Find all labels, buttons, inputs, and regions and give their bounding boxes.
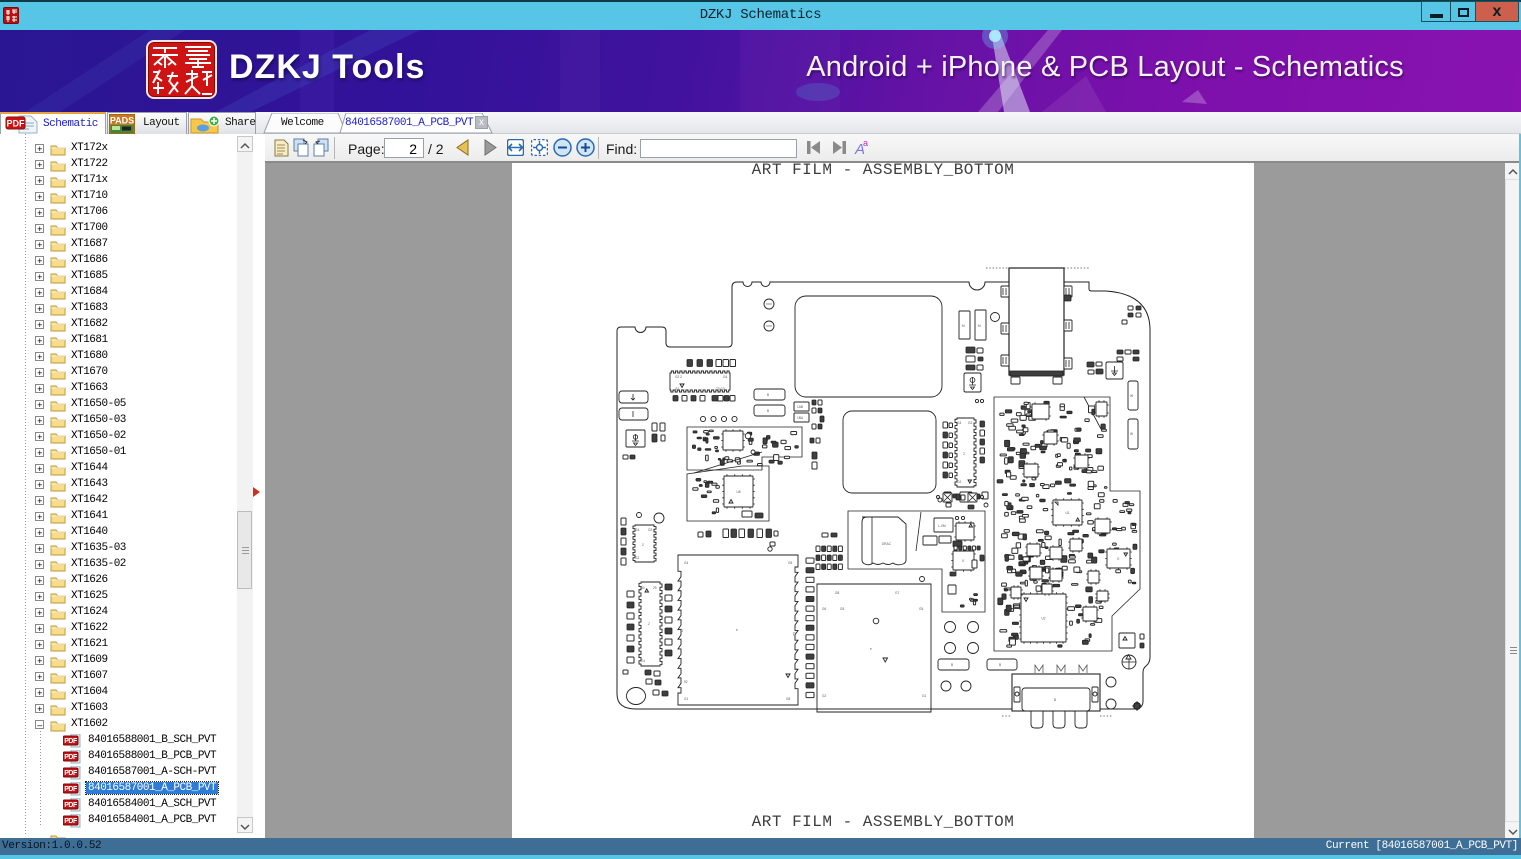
svg-text:G8: G8 — [786, 697, 790, 701]
svg-text:G2: G2 — [822, 694, 826, 698]
svg-text:G4: G4 — [684, 561, 688, 565]
svg-text:17: 17 — [680, 628, 684, 632]
svg-text:e: e — [870, 647, 872, 651]
svg-text:B: B — [951, 663, 953, 667]
svg-text:PDF: PDF — [64, 786, 78, 793]
svg-text:G4: G4 — [635, 528, 639, 532]
svg-text:M: M — [962, 324, 965, 328]
svg-text:PDF: PDF — [64, 818, 78, 825]
svg-text:PDF: PDF — [64, 738, 78, 745]
svg-text:PDF: PDF — [7, 119, 26, 129]
svg-text:PDF: PDF — [64, 754, 78, 761]
svg-text:2: 2 — [648, 622, 650, 626]
svg-text:B: B — [999, 663, 1001, 667]
svg-text:PDF: PDF — [64, 802, 78, 809]
svg-text:G2 2: G2 2 — [675, 375, 682, 379]
svg-text:G5: G5 — [919, 607, 923, 611]
svg-text:G2: G2 — [957, 480, 961, 484]
svg-text:29: 29 — [653, 586, 657, 590]
svg-text:G5: G5 — [788, 561, 792, 565]
svg-text:G4: G4 — [957, 421, 961, 425]
svg-text:1AB: 1AB — [797, 405, 803, 409]
svg-text:B: B — [1054, 698, 1056, 702]
svg-text:G6: G6 — [822, 607, 826, 611]
svg-text:e: e — [736, 628, 738, 632]
svg-text:G3: G3 — [648, 528, 652, 532]
svg-text:G8: G8 — [835, 591, 839, 595]
svg-text:U1: U1 — [1065, 511, 1069, 515]
svg-text:PADS: PADS — [110, 116, 134, 126]
svg-text:B: B — [767, 393, 769, 397]
svg-text:G3: G3 — [968, 421, 972, 425]
svg-text:PDF: PDF — [64, 770, 78, 777]
svg-text:G4: G4 — [723, 375, 727, 379]
svg-text:23 G3: 23 G3 — [716, 387, 725, 391]
svg-text:12: 12 — [792, 632, 796, 636]
svg-text:B: B — [767, 409, 769, 413]
svg-text:G1: G1 — [922, 694, 926, 698]
svg-text:G1: G1 — [675, 387, 679, 391]
svg-text:1BU: 1BU — [797, 416, 804, 420]
svg-text:G5: G5 — [840, 607, 844, 611]
svg-text:L-XM: L-XM — [938, 524, 946, 528]
svg-text:W: W — [1130, 394, 1133, 398]
svg-text:M: M — [978, 324, 981, 328]
svg-text:U8: U8 — [736, 490, 740, 494]
svg-text:52: 52 — [684, 680, 688, 684]
svg-text:a: a — [863, 138, 868, 148]
svg-text:G1: G1 — [684, 697, 688, 701]
svg-text:2: 2 — [963, 452, 965, 456]
svg-text:G1: G1 — [641, 659, 645, 663]
svg-text:DRAC: DRAC — [882, 542, 892, 546]
svg-text:E: E — [1117, 557, 1119, 561]
svg-text:30: 30 — [641, 586, 645, 590]
svg-text:W: W — [1130, 432, 1133, 436]
svg-text:U2: U2 — [1041, 617, 1045, 621]
svg-text:G2: G2 — [635, 556, 639, 560]
svg-text:2: 2 — [642, 543, 644, 547]
svg-text:G7: G7 — [895, 591, 899, 595]
